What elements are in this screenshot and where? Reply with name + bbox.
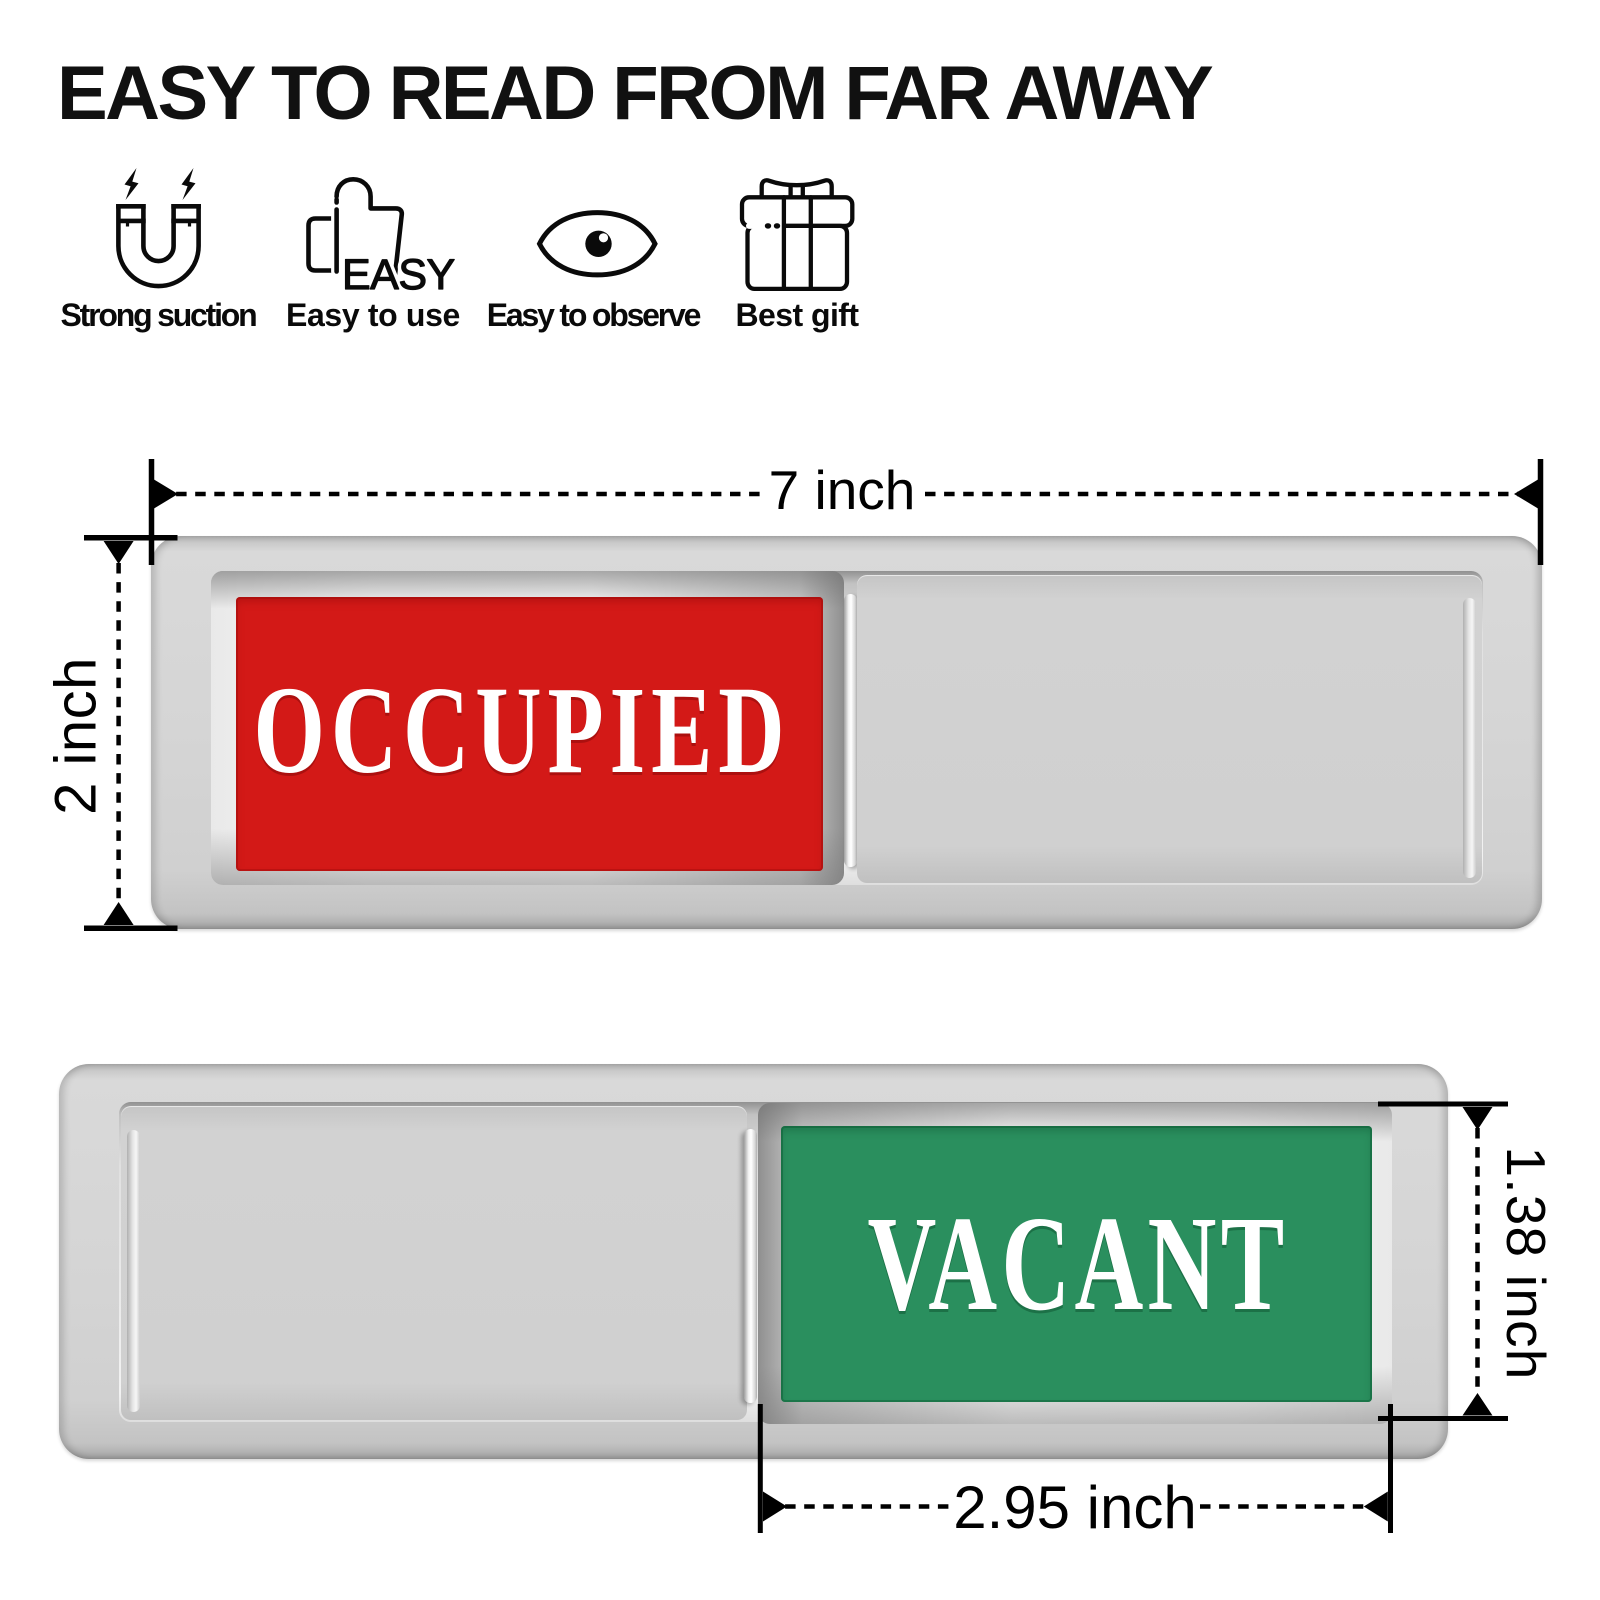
- svg-text:1.38 inch: 1.38 inch: [1495, 1146, 1557, 1380]
- svg-text:7 inch: 7 inch: [769, 459, 916, 521]
- svg-text:2 inch: 2 inch: [44, 657, 109, 815]
- svg-text:OCCUPIED: OCCUPIED: [254, 662, 791, 800]
- svg-text:2.95 inch: 2.95 inch: [953, 1474, 1197, 1541]
- svg-text:EASY: EASY: [342, 251, 455, 299]
- svg-text:VACANT: VACANT: [868, 1189, 1289, 1339]
